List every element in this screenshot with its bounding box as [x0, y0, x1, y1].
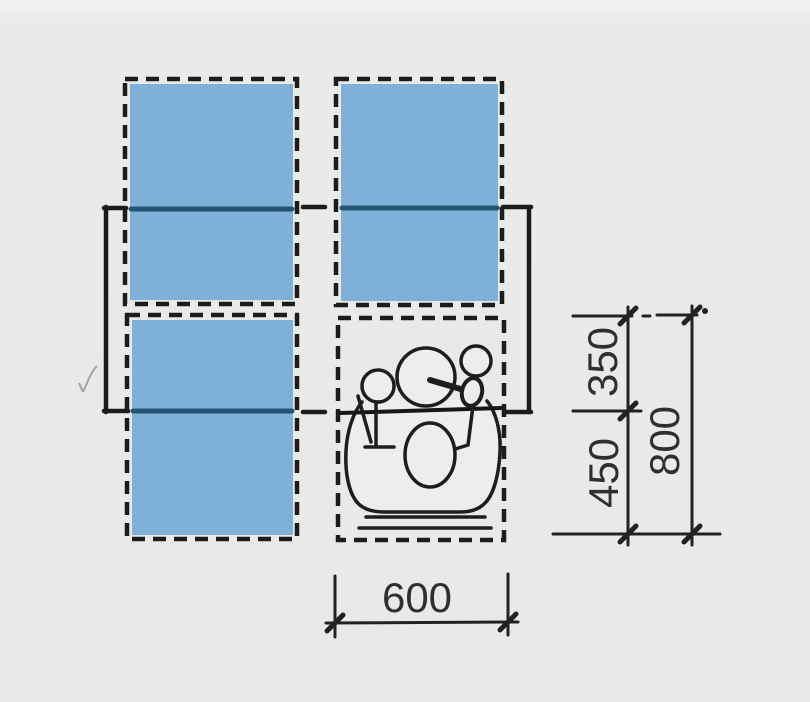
person-head — [397, 348, 455, 406]
seated-person-figure — [340, 346, 501, 528]
seat-zone-fill-bottom-left — [132, 320, 293, 535]
witness-line-zone-top — [573, 315, 697, 316]
dimension-label-350: 350 — [582, 327, 624, 397]
dimension-line-600 — [326, 622, 518, 623]
seat-zone-fill-top-left — [130, 84, 293, 300]
dimension-label-800: 800 — [644, 406, 686, 476]
dimension-label-600: 600 — [382, 577, 452, 619]
left-hand-object — [362, 370, 394, 402]
diagram-canvas: 350 450 800 600 — [0, 0, 810, 702]
person-torso — [405, 423, 455, 487]
cup-on-table — [461, 346, 491, 376]
seat-zone-fill-top-right — [341, 84, 498, 301]
chair-backrest — [359, 517, 491, 528]
dimension-label-450: 450 — [583, 438, 625, 508]
dimension-dot — [702, 308, 708, 314]
sketch-mark — [79, 366, 97, 392]
